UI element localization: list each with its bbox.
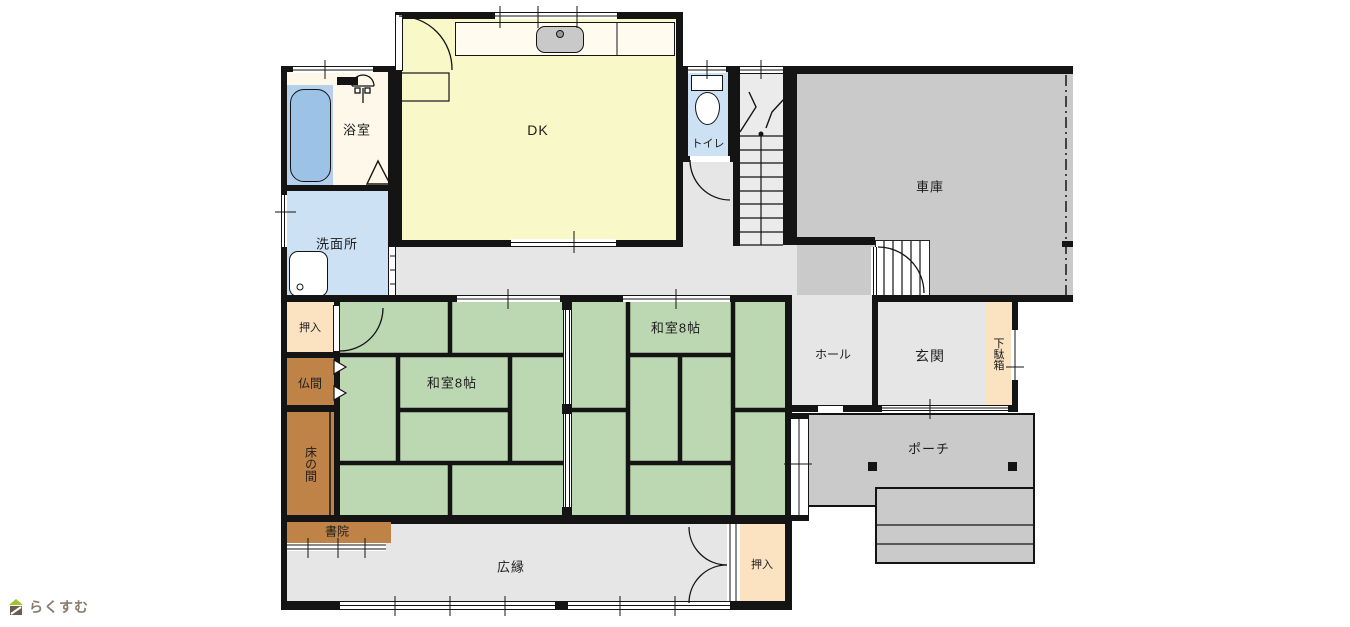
room-label-washitsu-left: 和室8帖	[427, 373, 477, 392]
window	[287, 543, 386, 551]
room-label-porch: ポーチ	[908, 439, 950, 458]
room-label-hiroen: 広縁	[497, 557, 525, 576]
hall-top-wall	[783, 237, 875, 245]
porch-pillar-left	[868, 462, 877, 471]
washroom-door	[389, 247, 395, 295]
entrance-door	[882, 406, 1008, 412]
garage-left-wall	[790, 66, 797, 245]
garage-bottom-wall	[872, 295, 1073, 302]
bath-counter	[337, 77, 358, 85]
stairs-left-wall	[733, 66, 740, 246]
stairs-right-wall	[783, 66, 790, 237]
dk-door-leaf	[395, 14, 403, 71]
butsuma-bottom-wall	[281, 405, 340, 412]
stairs-floor	[740, 73, 783, 245]
room-label-garage: 車庫	[916, 177, 944, 196]
floorplan-page: { "rooms": { "dk": {"label": "DK"}, "bat…	[0, 0, 1350, 627]
window	[740, 67, 783, 73]
site-logo-text: らくすむ	[29, 597, 89, 617]
oshiire-door-track	[727, 524, 739, 601]
kitchen-sink	[536, 26, 584, 53]
bay-window	[790, 413, 809, 521]
bathtub	[290, 89, 331, 182]
room-label-hall: ホール	[815, 346, 851, 363]
window	[282, 195, 287, 247]
corridor-main	[396, 245, 790, 302]
porch-steps	[875, 487, 1035, 564]
bay-window-cap-bottom	[790, 515, 809, 521]
house-icon	[8, 599, 24, 615]
sliding-door	[623, 296, 730, 302]
window	[688, 67, 726, 73]
sliding-door	[511, 239, 616, 246]
room-label-oshiire-bottom: 押入	[751, 556, 773, 572]
room-label-getabako: 下駄箱	[990, 338, 1006, 371]
room-label-oshiire-top: 押入	[299, 319, 321, 335]
room-label-genkan: 玄関	[915, 346, 945, 366]
hall-opening	[818, 406, 843, 412]
window	[340, 602, 555, 609]
garage-door-stop	[1062, 241, 1073, 247]
toilet-doorway	[690, 156, 730, 162]
tatami-partition-track	[563, 302, 572, 515]
site-logo: らくすむ	[8, 597, 89, 617]
hall-genkan-wall	[872, 302, 878, 412]
room-label-tokonoma: 床の間	[303, 446, 320, 482]
room-label-washitsu-right: 和室8帖	[651, 318, 701, 337]
garage-steps	[875, 240, 930, 297]
room-label-dk: DK	[527, 122, 548, 138]
sliding-door	[457, 296, 560, 302]
wash-basin	[289, 251, 328, 297]
room-label-bathroom: 浴室	[343, 120, 371, 139]
tatami-door-leaf	[333, 305, 340, 352]
bay-window-cap-top	[790, 413, 809, 419]
window	[871, 247, 879, 295]
window	[1011, 330, 1019, 380]
window	[495, 13, 617, 19]
toilet-tank	[691, 75, 723, 91]
porch-pillar-right	[1008, 462, 1017, 471]
room-label-toilet: トイレ	[692, 135, 725, 151]
room-label-butsuma: 仏間	[298, 375, 322, 392]
room-label-shoin: 書院	[325, 523, 349, 540]
room-label-washroom: 洗面所	[316, 234, 358, 253]
window	[568, 602, 730, 609]
window	[293, 67, 373, 73]
